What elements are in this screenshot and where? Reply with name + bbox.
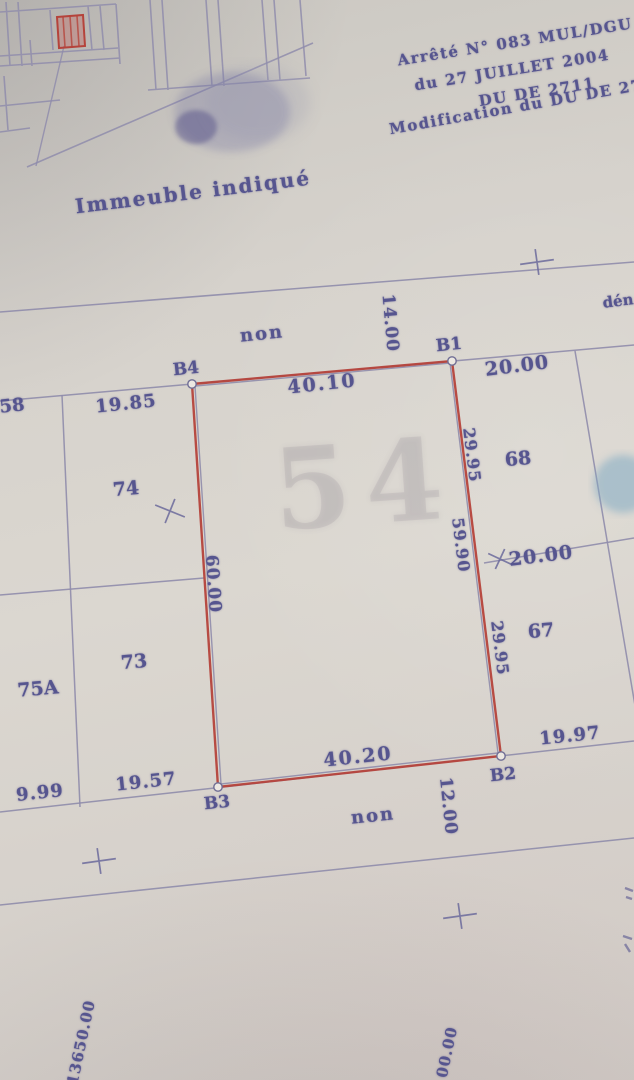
corner-marker-b2 (497, 752, 505, 760)
parcel-boundary-red (192, 361, 501, 787)
edge-fragment (623, 936, 632, 952)
survey-cross (441, 901, 478, 931)
parcel-number-75a: 75A (17, 676, 60, 702)
parcel-number-68: 68 (504, 447, 532, 471)
corner-label-b2: B2 (489, 764, 517, 787)
stamp-smudge (174, 65, 310, 152)
survey-plan-photo: 54 (0, 0, 634, 1080)
parcel-number-58: 58 (0, 394, 26, 418)
corner-label-b4: B4 (172, 358, 200, 381)
blue-stain (594, 455, 634, 513)
corner-label-b1: B1 (435, 334, 463, 357)
parcel-number-73: 73 (120, 650, 148, 674)
street-bottom-line (0, 838, 634, 905)
survey-cross (150, 493, 189, 529)
parcel-number-74: 74 (112, 477, 140, 501)
divider-74-73 (0, 578, 204, 595)
street-name-fragment: dén (602, 290, 634, 312)
plan-linework (0, 0, 634, 1080)
corner-marker-b4 (188, 380, 196, 388)
left-divider-line (62, 395, 80, 807)
edge-fragment (625, 888, 633, 899)
survey-cross (518, 247, 555, 277)
survey-cross (80, 846, 117, 876)
corner-marker-b1 (448, 357, 456, 365)
parcel-boundary-base (195, 363, 498, 784)
parcel-number-67: 67 (527, 619, 555, 643)
inset-target-parcel (57, 15, 85, 48)
corner-label-b3: B3 (203, 792, 231, 815)
dimension-parcel-left: 60.00 (201, 554, 225, 613)
corner-marker-b3 (214, 783, 222, 791)
